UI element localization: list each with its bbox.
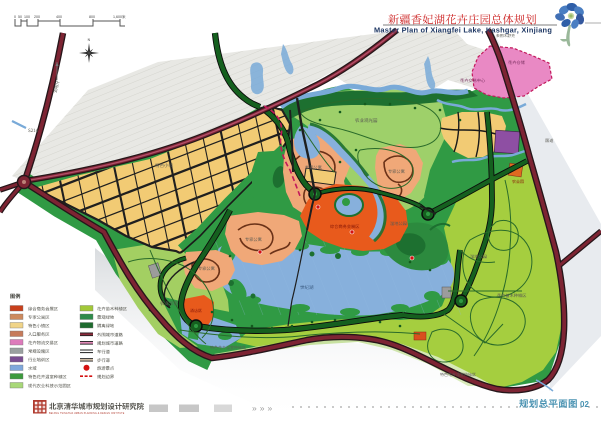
svg-text:»»»: »»» (252, 403, 275, 413)
svg-text:400: 400 (56, 15, 62, 19)
svg-text:0: 0 (14, 15, 16, 19)
svg-text:02: 02 (580, 400, 589, 409)
svg-text:Master Plan of Xiangfei Lake,: Master Plan of Xiangfei Lake, Kashgar, X… (374, 26, 552, 35)
svg-text:100: 100 (24, 15, 30, 19)
svg-text:800: 800 (89, 15, 95, 19)
svg-text:200: 200 (34, 15, 40, 19)
svg-text:1,600米: 1,600米 (113, 14, 126, 19)
svg-text:50: 50 (18, 15, 22, 19)
svg-text:BEIJING TSINGHUA URBAN PLANNIN: BEIJING TSINGHUA URBAN PLANNING & DESIGN… (49, 412, 125, 415)
